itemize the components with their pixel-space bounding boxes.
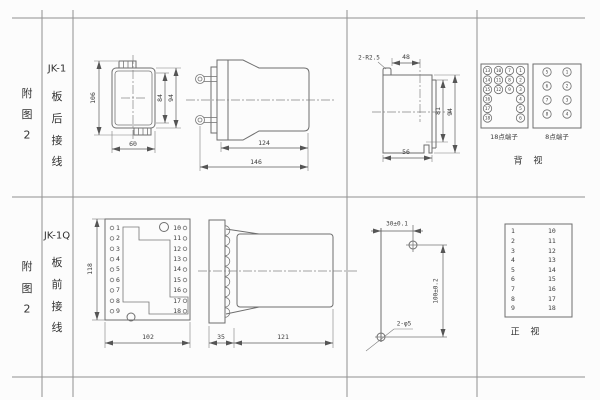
- label-front-view: 正 视: [511, 325, 544, 338]
- terminal-bump: [225, 277, 230, 287]
- terminal-number: 11: [496, 78, 502, 84]
- jk1q-side-view-drawing: [198, 220, 358, 348]
- terminal-jack: [110, 309, 114, 313]
- terminal-number: 4: [511, 256, 515, 266]
- terminal-number: 6: [511, 275, 515, 285]
- fig-label-char: 附: [22, 85, 33, 101]
- terminal-number: 1: [566, 70, 569, 76]
- dim-121: 121: [277, 333, 289, 341]
- terminal-number: 6: [116, 275, 120, 285]
- terminal-number: 13: [170, 254, 181, 264]
- jk1q-terminal-table-box: [505, 224, 572, 317]
- terminal-jack: [110, 247, 114, 251]
- terminal-bump: [225, 308, 230, 318]
- terminal-table-left-column: 123456789: [511, 227, 515, 313]
- terminal-jack: [183, 226, 187, 230]
- terminal-bump: [225, 246, 230, 256]
- terminal-jack: [110, 257, 114, 261]
- terminal-jack: [183, 278, 187, 282]
- terminal-number: 4: [519, 97, 522, 103]
- wiring-label-char: 线: [52, 319, 63, 335]
- terminal-number: 8: [116, 296, 120, 306]
- terminal-bump: [225, 287, 230, 297]
- jk1-side-view-drawing: [186, 60, 334, 171]
- terminal-number: 18: [170, 306, 181, 316]
- terminal-number: 2: [511, 237, 515, 247]
- dim-146: 146: [250, 158, 262, 166]
- terminal-number: 18: [548, 304, 556, 314]
- terminal-number: 15: [485, 87, 491, 93]
- dim-100-tolerance: 100±0.2: [433, 278, 440, 303]
- terminal-number: 9: [508, 87, 511, 93]
- terminal-number: 6: [519, 116, 522, 122]
- wiring-label-char: 板: [52, 88, 63, 104]
- terminal-number: 13: [548, 256, 556, 266]
- wiring-label-char: 前: [52, 276, 63, 292]
- terminal-number: 2: [519, 78, 522, 84]
- wiring-label-char: 接: [52, 132, 63, 148]
- terminal-number: 16: [548, 285, 556, 295]
- terminal-jack: [183, 309, 187, 313]
- terminal-number: 14: [548, 266, 556, 276]
- jk1-terminal-18pt-box: 131415161718101112789123456: [481, 64, 528, 128]
- terminal-number: 5: [116, 264, 120, 274]
- terminal-number: 13: [485, 68, 491, 74]
- label-2-r2-5: 2-R2.5: [358, 55, 380, 62]
- terminal-number: 10: [170, 223, 181, 233]
- jk1-front-view-drawing: [94, 55, 181, 153]
- wiring-label-char: 接: [52, 298, 63, 314]
- terminal-jack: [183, 237, 187, 241]
- terminal-number: 16: [485, 97, 491, 103]
- dim-102: 102: [142, 333, 154, 341]
- dim-118: 118: [86, 263, 94, 275]
- terminal-number: 3: [511, 247, 515, 257]
- terminal-number: 8: [546, 112, 549, 118]
- terminal-number: 3: [116, 244, 120, 254]
- terminal-number: 7: [546, 98, 549, 104]
- terminal-number: 17: [485, 106, 491, 112]
- terminal-number: 1: [519, 68, 522, 74]
- dim-30-tolerance: 30±0.1: [386, 221, 408, 228]
- terminal-number: 12: [170, 244, 181, 254]
- dim-56: 56: [402, 148, 410, 156]
- terminal-number: 10: [548, 227, 556, 237]
- model-label-jk1: JK-1: [48, 64, 66, 75]
- terminal-jack: [110, 299, 114, 303]
- terminal-jack: [183, 268, 187, 272]
- dim-124: 124: [258, 139, 270, 147]
- terminal-bump: [225, 226, 230, 236]
- terminal-jack: [183, 247, 187, 251]
- terminal-number: 9: [116, 306, 120, 316]
- terminal-number: 9: [511, 304, 515, 314]
- terminal-number: 15: [170, 275, 181, 285]
- terminal-number: 8: [511, 295, 515, 305]
- terminal-jack: [110, 289, 114, 293]
- label-2-phi5-holes: 2-φ5: [397, 321, 411, 328]
- wiring-label-char: 板: [52, 254, 63, 270]
- terminal-number: 18: [485, 116, 491, 122]
- model-label-jk1q: JK-1Q: [44, 231, 70, 242]
- terminal-number: 8: [508, 78, 511, 84]
- terminal-bump: [225, 297, 230, 307]
- terminal-number: 17: [170, 296, 181, 306]
- terminal-bump: [225, 236, 230, 246]
- terminal-number: 5: [511, 266, 515, 276]
- terminal-number: 4: [116, 254, 120, 264]
- fig-label-char: 附: [22, 258, 33, 274]
- jk1q-front-left-terminal-numbers: 123456789: [116, 223, 120, 317]
- terminal-number: 11: [548, 237, 556, 247]
- terminal-number: 5: [519, 106, 522, 112]
- dim-94-cutout: 94: [446, 108, 454, 116]
- terminal-bump: [225, 256, 230, 266]
- label-rear-view: 背 视: [514, 154, 547, 167]
- terminal-number: 15: [548, 275, 556, 285]
- terminal-number: 3: [566, 98, 569, 104]
- fig-label-char: 图: [22, 280, 33, 296]
- terminal-jack: [183, 289, 187, 293]
- terminal-jack: [110, 237, 114, 241]
- label-8pt-terminals: 8点端子: [545, 131, 569, 141]
- terminal-jack: [110, 268, 114, 272]
- fig-label-char: 图: [22, 106, 33, 122]
- terminal-number: 2: [116, 233, 120, 243]
- dim-48: 48: [402, 53, 410, 61]
- terminal-number: 11: [170, 233, 181, 243]
- terminal-number: 16: [170, 285, 181, 295]
- drawing-linework: 131415161718101112789123456 56781234: [0, 0, 600, 400]
- terminal-number: 2: [566, 84, 569, 90]
- label-18pt-terminals: 18点端子: [490, 131, 518, 141]
- relay-dimension-drawing-sheet: 131415161718101112789123456 56781234: [0, 0, 600, 400]
- mounting-hole: [160, 223, 169, 232]
- terminal-number: 7: [116, 285, 120, 295]
- terminal-jack: [110, 226, 114, 230]
- dim-60: 60: [129, 140, 137, 148]
- dim-35: 35: [217, 333, 225, 341]
- terminal-jack: [183, 299, 187, 303]
- jk1q-front-right-terminal-numbers: 101112131415161718: [170, 223, 181, 317]
- terminal-number: 10: [496, 68, 502, 74]
- terminal-number: 1: [116, 223, 120, 233]
- terminal-bump: [225, 267, 230, 277]
- dim-106: 106: [89, 92, 97, 104]
- terminal-jack: [110, 278, 114, 282]
- terminal-jack: [183, 257, 187, 261]
- terminal-number: 12: [496, 87, 502, 93]
- dim-81: 81: [434, 107, 442, 115]
- wiring-label-char: 后: [52, 110, 63, 126]
- fig-label-char: 2: [24, 303, 31, 316]
- dim-84: 84: [156, 94, 164, 102]
- jk1-terminal-8pt-box: 56781234: [533, 64, 581, 128]
- terminal-number: 7: [508, 68, 511, 74]
- terminal-number: 14: [170, 264, 181, 274]
- terminal-number: 3: [519, 87, 522, 93]
- terminal-number: 4: [566, 112, 569, 118]
- terminal-number: 6: [546, 84, 549, 90]
- terminal-number: 5: [546, 70, 549, 76]
- terminal-number: 7: [511, 285, 515, 295]
- terminal-table-right-column: 101112131415161718: [548, 227, 556, 313]
- terminal-number: 17: [548, 295, 556, 305]
- terminal-number: 12: [548, 247, 556, 257]
- terminal-number: 14: [485, 78, 491, 84]
- wiring-label-char: 线: [52, 153, 63, 169]
- terminal-number: 1: [511, 227, 515, 237]
- dim-94: 94: [167, 94, 175, 102]
- fig-label-char: 2: [24, 129, 31, 142]
